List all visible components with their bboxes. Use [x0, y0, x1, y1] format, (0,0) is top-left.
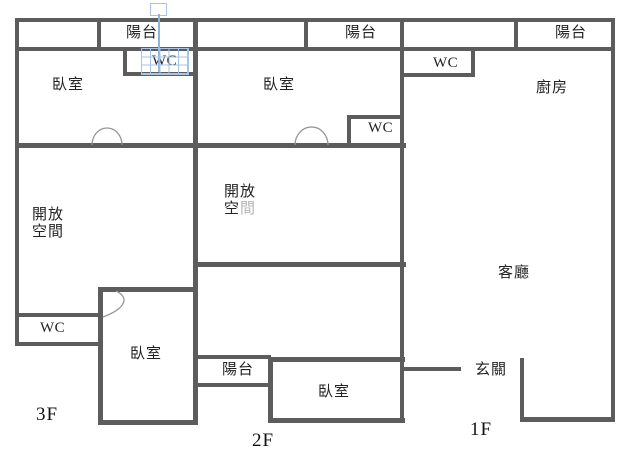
wall-segment [402, 73, 475, 77]
room-label-bedroom-top-3f: 臥室 [52, 77, 84, 93]
room-label-balcony-bottom-2f: 陽台 [222, 362, 254, 378]
floor-plan-canvas: 陽台 WC 臥室 開放 空間 WC 臥室 3F 陽台 臥室 WC 開放 空間 陽… [0, 0, 638, 460]
floor-label-3f: 3F [36, 404, 58, 426]
room-label-entry-1f: 玄關 [475, 362, 507, 378]
room-label-wc-1f: WC [433, 55, 458, 71]
wall-segment [98, 420, 197, 425]
wall-segment [123, 50, 127, 76]
wall-segment [15, 47, 615, 51]
room-label-bedroom-top-2f: 臥室 [263, 77, 295, 93]
wall-segment [471, 51, 475, 77]
room-label-balcony-3f: 陽台 [126, 25, 158, 41]
wall-segment [15, 313, 100, 317]
wall-segment [268, 418, 405, 423]
wall-segment [97, 22, 101, 47]
room-label-open-space-2f-line1: 開放 [224, 184, 256, 200]
wall-segment [304, 22, 308, 47]
room-label-open-space-3f-line2: 空間 [32, 224, 64, 240]
wall-segment [404, 367, 461, 371]
floor-label-2f: 2F [252, 430, 274, 452]
wall-segment [195, 383, 271, 387]
floor-label-1f: 1F [470, 419, 492, 441]
room-label-open-space-2f-line2: 空間 [224, 201, 256, 217]
room-label-wc-2f: WC [368, 120, 393, 136]
room-label-balcony-1f: 陽台 [555, 25, 587, 41]
wall-segment [520, 417, 615, 422]
door-arc [103, 291, 124, 317]
room-label-bedroom-bottom-2f: 臥室 [318, 384, 350, 400]
room-label-bedroom-bottom-3f: 臥室 [130, 346, 162, 362]
wall-segment [195, 262, 406, 267]
wall-segment [98, 287, 197, 292]
wall-segment [520, 358, 524, 422]
wall-segment [15, 342, 100, 346]
wall-segment [193, 18, 198, 425]
wall-segment [195, 355, 271, 359]
wall-segment [268, 357, 405, 362]
wall-segment [15, 18, 615, 22]
room-label-kitchen-1f: 廚房 [536, 80, 568, 96]
wall-segment [347, 115, 351, 145]
wall-segment [268, 357, 273, 423]
wall-segment [611, 18, 615, 422]
wall-segment [400, 18, 404, 423]
wall-segment [15, 18, 19, 346]
room-label-living-room-1f: 客廳 [498, 265, 530, 281]
room-label-balcony-2f: 陽台 [345, 25, 377, 41]
wall-segment [98, 287, 103, 425]
open-space-2f-char-dark: 空 [224, 201, 240, 217]
room-label-open-space-3f-line1: 開放 [32, 207, 64, 223]
room-label-wc-bottom-3f: WC [40, 320, 65, 336]
wall-segment [514, 22, 518, 47]
wall-segment [348, 115, 402, 119]
open-space-2f-char-dim: 間 [240, 201, 256, 217]
wc-selection-grid[interactable] [141, 48, 189, 75]
